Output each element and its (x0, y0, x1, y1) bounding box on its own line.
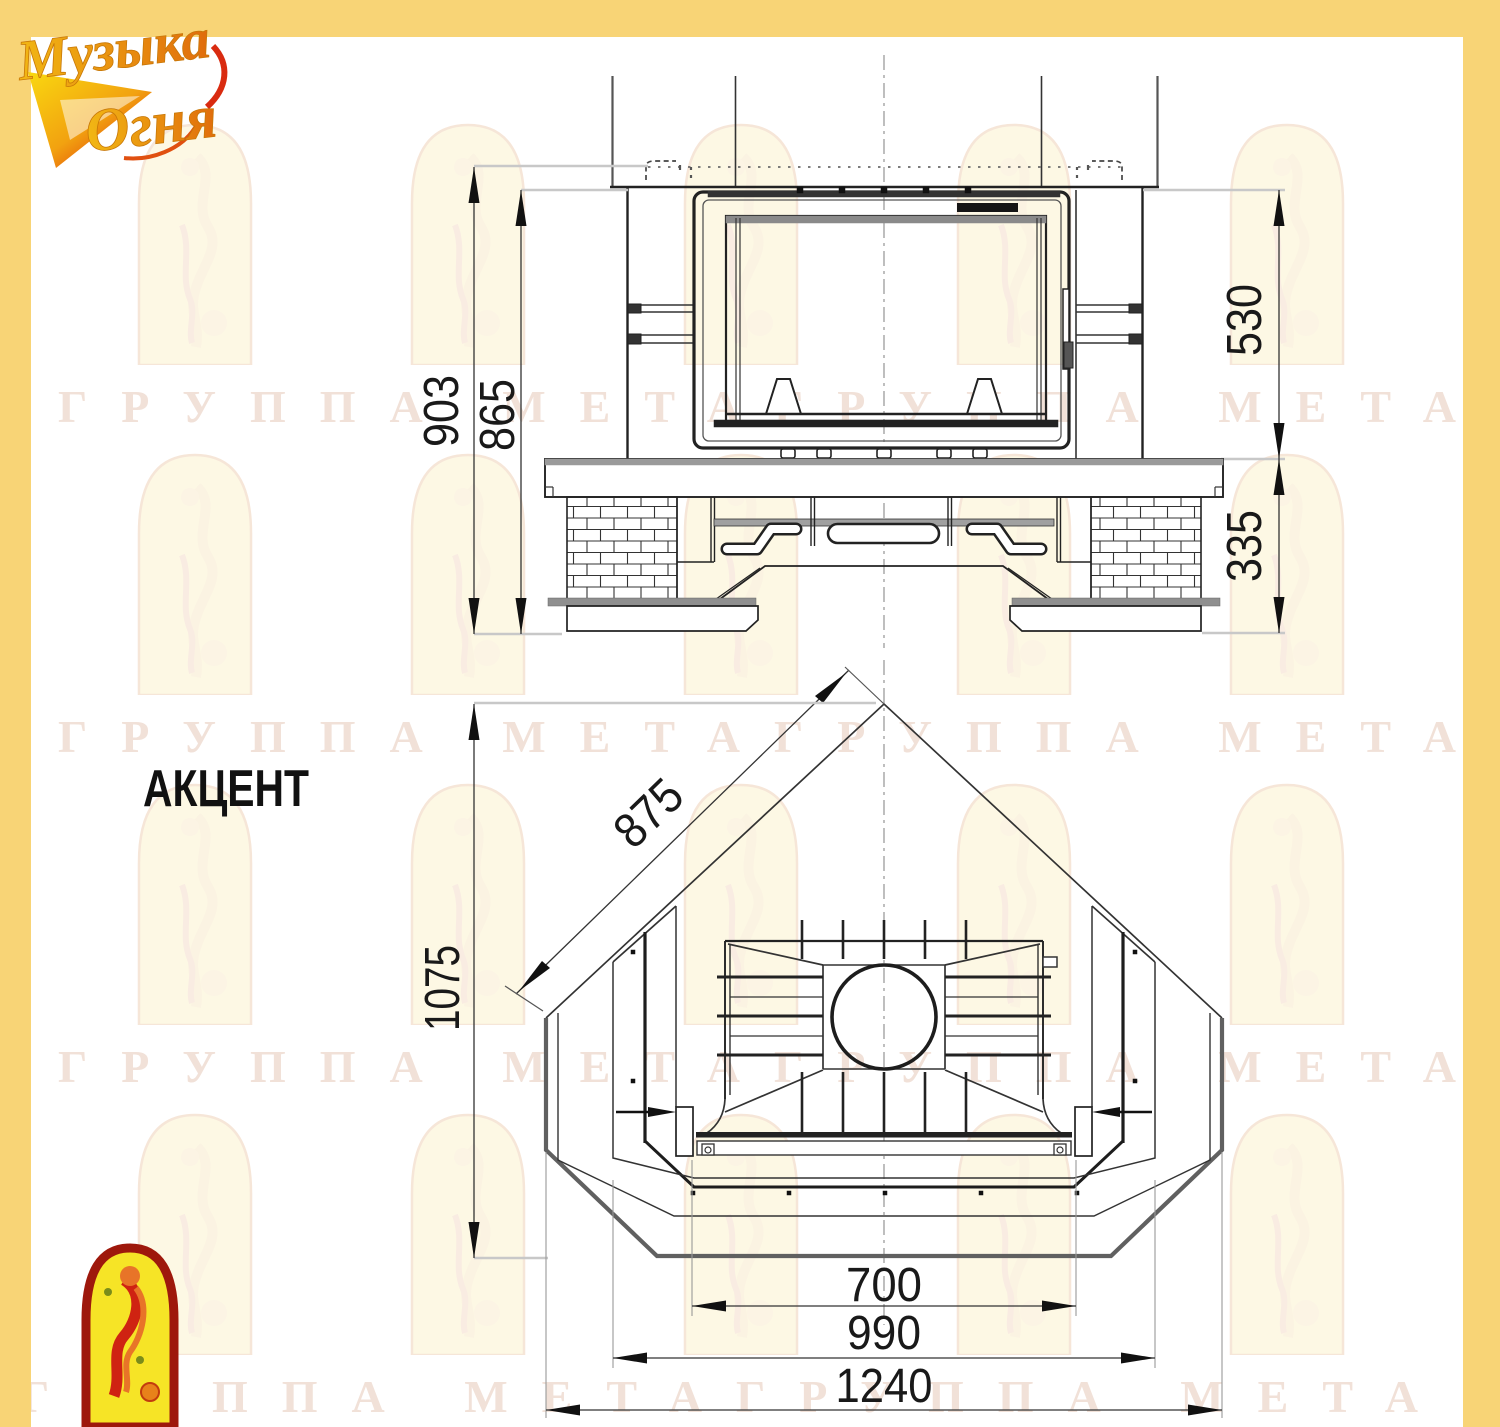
svg-text:990: 990 (847, 1307, 921, 1360)
svg-text:1240: 1240 (836, 1360, 933, 1413)
svg-text:Музыка: Музыка (13, 7, 213, 93)
svg-text:1075: 1075 (416, 945, 470, 1031)
svg-text:865: 865 (471, 379, 525, 451)
svg-text:903: 903 (415, 375, 469, 447)
svg-text:335: 335 (1218, 510, 1272, 582)
svg-text:АКЦЕНТ: АКЦЕНТ (143, 760, 309, 818)
svg-text:875: 875 (604, 768, 695, 858)
svg-text:530: 530 (1218, 284, 1272, 356)
svg-text:700: 700 (846, 1259, 922, 1312)
